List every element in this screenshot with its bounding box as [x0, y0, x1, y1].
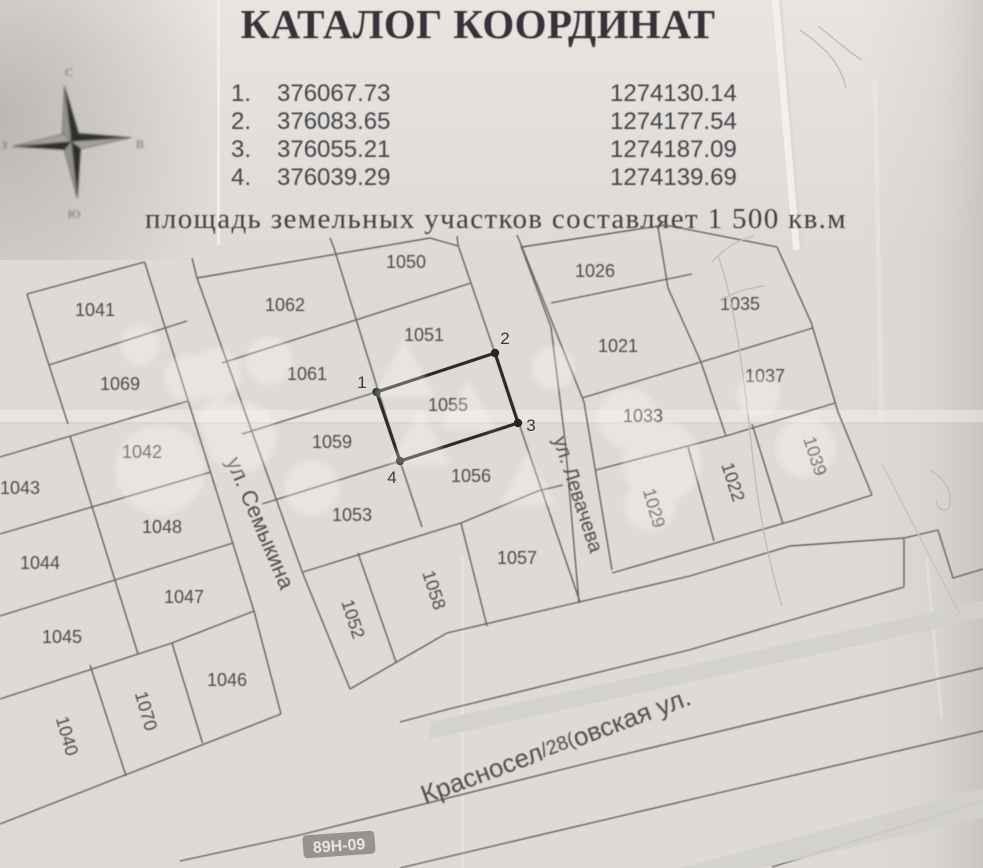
svg-text:1045: 1045: [42, 627, 82, 647]
svg-text:2: 2: [500, 329, 509, 348]
svg-text:376067.73: 376067.73: [277, 80, 390, 107]
svg-text:1274187.09: 1274187.09: [610, 136, 737, 163]
svg-text:1043: 1043: [0, 478, 40, 498]
svg-text:376055.21: 376055.21: [277, 136, 390, 163]
svg-text:1053: 1053: [332, 505, 372, 525]
svg-text:1057: 1057: [497, 548, 537, 568]
svg-text:2.: 2.: [231, 108, 251, 135]
svg-text:1062: 1062: [265, 295, 305, 315]
svg-text:1050: 1050: [386, 252, 426, 272]
svg-text:1274177.54: 1274177.54: [610, 108, 737, 135]
svg-text:4.: 4.: [231, 164, 251, 191]
svg-text:1047: 1047: [164, 587, 204, 607]
svg-text:С: С: [65, 65, 73, 79]
svg-text:1021: 1021: [598, 336, 638, 356]
svg-text:1026: 1026: [575, 261, 615, 281]
svg-text:З: З: [1, 138, 7, 152]
svg-text:Ю: Ю: [68, 207, 80, 221]
svg-text:1069: 1069: [100, 374, 140, 394]
svg-text:площадь земельных участков сос: площадь земельных участков составляет 1 …: [145, 203, 847, 235]
svg-text:3: 3: [526, 416, 535, 435]
svg-text:1051: 1051: [404, 325, 444, 345]
svg-text:1: 1: [357, 373, 366, 392]
svg-text:1046: 1046: [207, 670, 247, 690]
svg-text:КАТАЛОГ КООРДИНАТ: КАТАЛОГ КООРДИНАТ: [241, 1, 716, 47]
svg-text:4: 4: [387, 468, 396, 487]
svg-text:1048: 1048: [142, 517, 182, 537]
svg-text:1044: 1044: [20, 553, 60, 573]
svg-text:1061: 1061: [287, 364, 327, 384]
svg-text:1041: 1041: [75, 300, 115, 320]
svg-text:376039.29: 376039.29: [277, 164, 390, 191]
svg-text:В: В: [136, 137, 144, 151]
svg-text:1274139.69: 1274139.69: [610, 164, 737, 191]
svg-text:1056: 1056: [451, 466, 491, 486]
svg-text:376083.65: 376083.65: [277, 108, 390, 135]
svg-text:1059: 1059: [312, 432, 352, 452]
svg-text:1274130.14: 1274130.14: [610, 80, 737, 107]
svg-text:3.: 3.: [231, 136, 251, 163]
svg-text:1.: 1.: [231, 80, 251, 107]
